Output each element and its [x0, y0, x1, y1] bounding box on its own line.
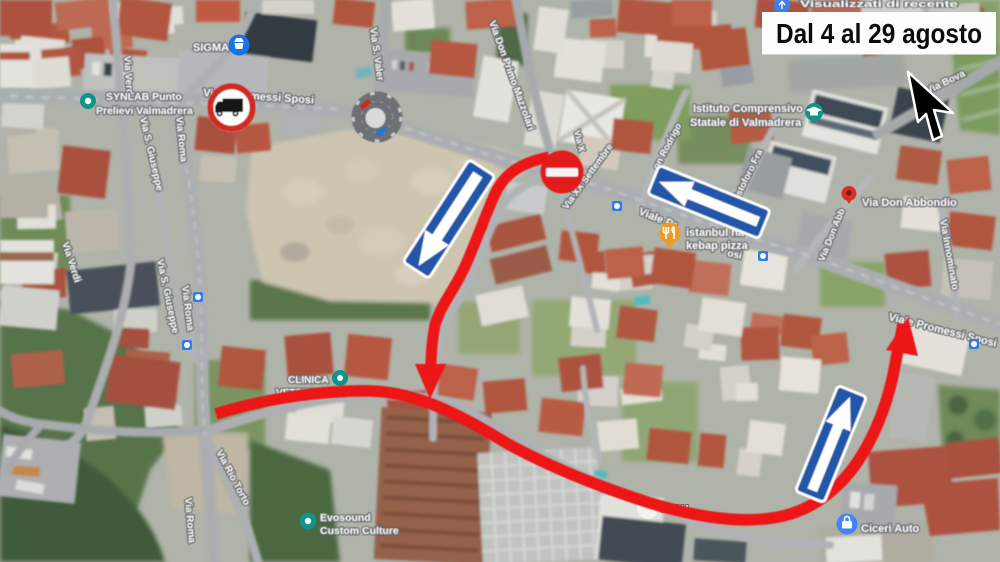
svg-text:Evosound: Evosound [320, 512, 371, 524]
svg-text:Via Don Abbondio: Via Don Abbondio [862, 197, 957, 209]
svg-text:SIGMA: SIGMA [193, 42, 229, 54]
svg-text:Dal 4 al 29 agosto: Dal 4 al 29 agosto [776, 18, 982, 49]
svg-text:Statale di Valmadrera: Statale di Valmadrera [690, 117, 802, 129]
svg-text:CLINICA: CLINICA [288, 375, 329, 386]
svg-text:Istituto Comprensivo: Istituto Comprensivo [693, 103, 803, 115]
svg-text:Ciceri Auto: Ciceri Auto [861, 523, 920, 535]
svg-text:Prelievi Valmadrera: Prelievi Valmadrera [96, 105, 193, 117]
svg-text:Visualizzati di recente: Visualizzati di recente [800, 0, 958, 9]
svg-text:Custom Culture: Custom Culture [320, 525, 399, 537]
svg-text:SYNLAB Punto: SYNLAB Punto [106, 91, 182, 103]
